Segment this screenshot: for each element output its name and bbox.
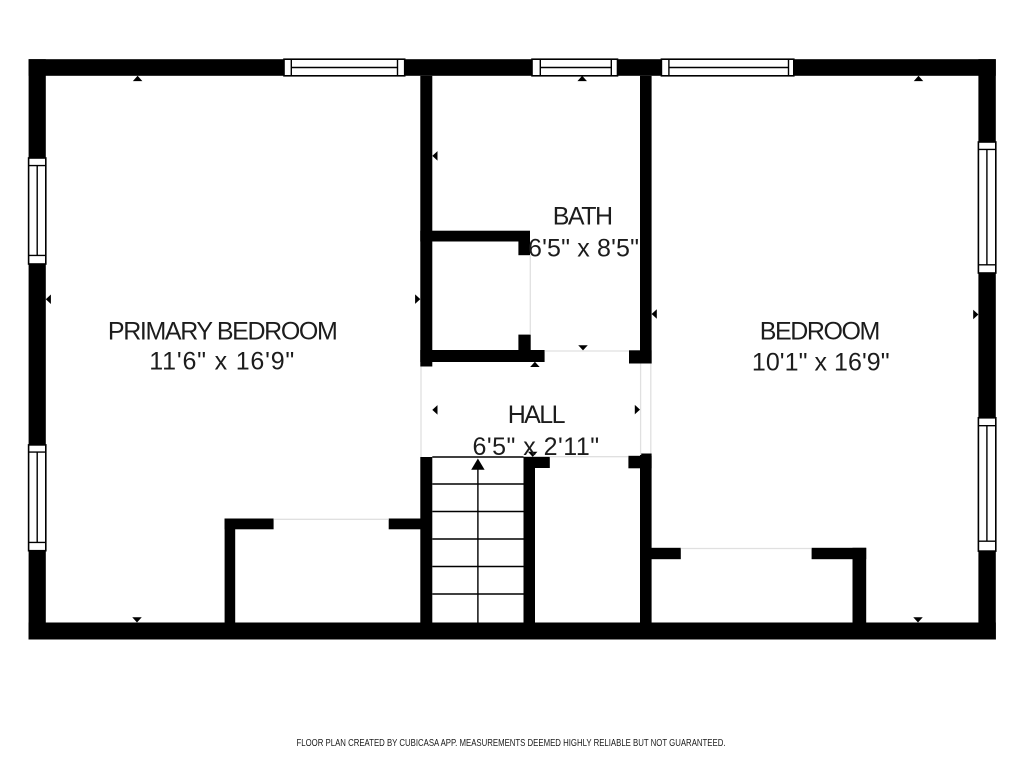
svg-text:HALL: HALL (508, 401, 566, 429)
svg-text:6'5" x 2'11": 6'5" x 2'11" (473, 433, 600, 461)
svg-text:BATH: BATH (553, 202, 613, 230)
svg-text:FLOOR PLAN CREATED BY CUBICASA: FLOOR PLAN CREATED BY CUBICASA APP. MEAS… (297, 738, 726, 749)
svg-text:6'5" x 8'5": 6'5" x 8'5" (528, 235, 639, 263)
svg-text:10'1" x 16'9": 10'1" x 16'9" (752, 348, 890, 376)
svg-text:BEDROOM: BEDROOM (760, 317, 881, 345)
svg-text:11'6" x 16'9": 11'6" x 16'9" (149, 348, 294, 376)
svg-text:PRIMARY BEDROOM: PRIMARY BEDROOM (108, 317, 338, 345)
